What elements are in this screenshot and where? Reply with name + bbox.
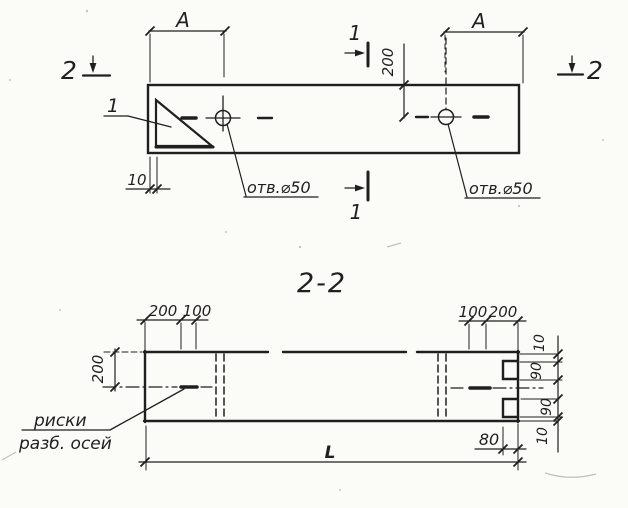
axis-note-line2: разб. осей <box>18 434 112 454</box>
axis-centerlines <box>103 387 543 388</box>
hole-2 <box>416 38 488 125</box>
hole2-callout: отв.⌀50 <box>448 124 540 198</box>
dim-edge-10: 10 <box>126 157 170 194</box>
dim-length-L: L <box>139 424 526 470</box>
beam-drawing: A A 200 10 1 <box>0 0 628 508</box>
detail-callout-1: 1 <box>104 95 171 127</box>
drawing-sheet: A A 200 10 1 <box>0 0 628 508</box>
detail-callout-label: 1 <box>107 95 119 117</box>
dim-a-right: A <box>441 9 528 83</box>
section1-top-label: 1 <box>349 21 362 45</box>
dim-top-right: 100 200 <box>459 303 526 350</box>
dim-tr-200: 200 <box>489 303 518 321</box>
end-notches <box>503 361 517 417</box>
dim-right-90-top: 90 <box>529 362 545 380</box>
dim-edge-label: 10 <box>127 171 146 189</box>
dim-right-10-top: 10 <box>532 334 548 352</box>
section-marker-1-bottom: 1 <box>345 172 368 224</box>
section-arrow-down-icon <box>90 63 97 73</box>
dim-depth-label: 200 <box>379 48 397 77</box>
section-marker-1-top: 1 <box>345 21 368 66</box>
dim-height-200: 200 <box>89 348 142 392</box>
section-beam-outline <box>144 351 519 422</box>
dim-right-90-bottom: 90 <box>539 398 555 416</box>
dim-right-stack: 10 90 90 10 <box>520 334 563 452</box>
section-arrow-down-icon <box>569 63 576 73</box>
section-marker-2-right: 2 <box>558 56 603 85</box>
section-arrow-right-icon <box>355 50 365 57</box>
dim-top-left: 200 100 <box>137 302 211 350</box>
dim-tl-200: 200 <box>149 302 178 320</box>
dim-a-right-label: A <box>470 9 486 33</box>
dim-tl-100: 100 <box>183 302 212 320</box>
dim-a-left: A <box>146 8 230 82</box>
hole1-callout: отв.⌀50 <box>227 124 318 197</box>
section2-right-label: 2 <box>587 56 603 85</box>
dim-notch-label: 80 <box>479 430 499 449</box>
corner-detail-triangle <box>156 100 213 147</box>
axis-note-line1: риски <box>33 411 87 431</box>
plan-view: A A 200 10 1 <box>61 8 603 224</box>
dim-height-label: 200 <box>89 355 107 384</box>
section1-bottom-label: 1 <box>350 200 363 224</box>
section-marker-2-left: 2 <box>61 56 110 85</box>
dim-a-left-label: A <box>174 8 190 32</box>
hole-hidden-lines <box>216 354 446 420</box>
hole2-label: отв.⌀50 <box>469 179 533 198</box>
dim-depth-200: 200 <box>379 44 409 122</box>
section-arrow-right-icon <box>355 185 365 192</box>
section-title: 2-2 <box>297 268 347 299</box>
hole1-label: отв.⌀50 <box>247 178 311 197</box>
plan-beam-outline <box>148 85 519 153</box>
scan-artifacts <box>2 10 604 491</box>
dim-length-label: L <box>325 443 336 463</box>
dim-right-10-bottom: 10 <box>535 427 551 445</box>
section-view: 2-2 200 100 <box>18 268 563 470</box>
dim-tr-100: 100 <box>459 303 488 321</box>
section2-left-label: 2 <box>61 56 77 85</box>
